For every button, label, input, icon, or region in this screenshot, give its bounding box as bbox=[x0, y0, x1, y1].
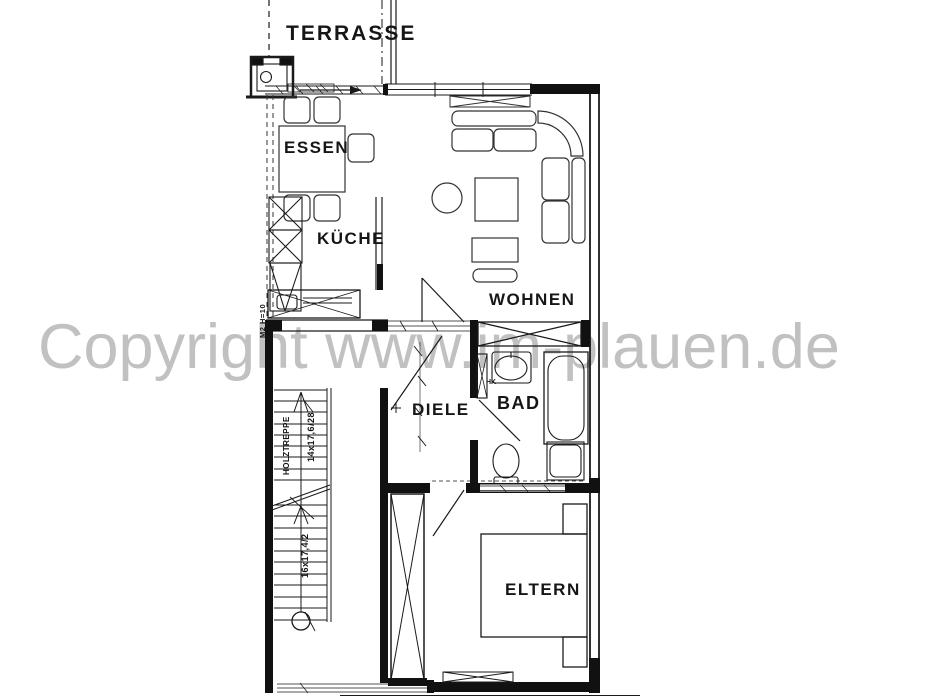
room-label-terrasse: TERRASSE bbox=[286, 22, 416, 46]
diele-door bbox=[391, 336, 442, 410]
bathtub bbox=[544, 352, 588, 444]
sofa-seat bbox=[494, 129, 536, 151]
room-label-bad: BAD bbox=[497, 393, 541, 414]
chair bbox=[284, 195, 310, 221]
sink bbox=[492, 352, 531, 383]
kitchen-sink-counter bbox=[268, 290, 360, 318]
chair bbox=[314, 195, 340, 221]
chair bbox=[348, 134, 374, 162]
nightstand bbox=[563, 504, 587, 534]
bath-radiator bbox=[477, 354, 487, 398]
room-label-essen: ESSEN bbox=[284, 138, 349, 158]
stair-lower-dimension: 16x17,4/2 bbox=[300, 533, 310, 578]
coat-hooks bbox=[391, 342, 426, 452]
radiator bbox=[450, 96, 530, 107]
shower bbox=[547, 442, 584, 480]
room-label-wohnen: WOHNEN bbox=[489, 290, 575, 310]
terrace-door-sill bbox=[265, 84, 388, 94]
kitchen-note-label: M2 H=10 bbox=[258, 304, 267, 338]
sofa-back bbox=[452, 111, 536, 126]
living-room-furniture bbox=[432, 96, 585, 282]
sofa-back bbox=[572, 158, 585, 243]
room-label-kueche: KÜCHE bbox=[317, 229, 385, 249]
stool bbox=[472, 238, 518, 262]
sofa-seat bbox=[452, 129, 493, 151]
room-label-eltern: ELTERN bbox=[505, 580, 581, 600]
bedroom-radiator bbox=[443, 672, 513, 682]
radiator-label: HK bbox=[486, 379, 496, 386]
chair bbox=[284, 97, 310, 123]
floorplan-page: Copyright www.im-plauen.de bbox=[0, 0, 933, 700]
eltern-door bbox=[433, 490, 464, 536]
sofa-seat bbox=[542, 201, 569, 243]
nightstand bbox=[563, 637, 587, 667]
bench bbox=[473, 269, 517, 282]
stair-material-label: HOLZTREPPE bbox=[282, 416, 291, 475]
coffee-table bbox=[475, 178, 518, 221]
floorplan-drawing bbox=[0, 0, 933, 700]
diele-top-sill bbox=[388, 321, 470, 331]
stair-start-circle bbox=[292, 612, 310, 630]
bathroom-fixtures bbox=[477, 352, 588, 484]
wohnen-door bbox=[422, 278, 464, 322]
staircase bbox=[272, 388, 331, 631]
stair-upper-dimension: 14x17,6/28 bbox=[306, 412, 316, 462]
dining-set bbox=[279, 97, 374, 221]
bedroom-wardrobe bbox=[388, 494, 427, 686]
sofa-corner bbox=[538, 111, 583, 156]
chair bbox=[314, 97, 340, 123]
terrace-grill bbox=[246, 57, 297, 97]
top-window bbox=[383, 82, 532, 97]
side-table bbox=[432, 183, 462, 213]
room-label-diele: DIELE bbox=[412, 400, 470, 420]
hall-closet bbox=[478, 322, 581, 346]
dining-table bbox=[279, 126, 345, 192]
terrace bbox=[246, 0, 396, 97]
sofa-seat bbox=[542, 158, 569, 200]
toilet bbox=[493, 444, 519, 484]
